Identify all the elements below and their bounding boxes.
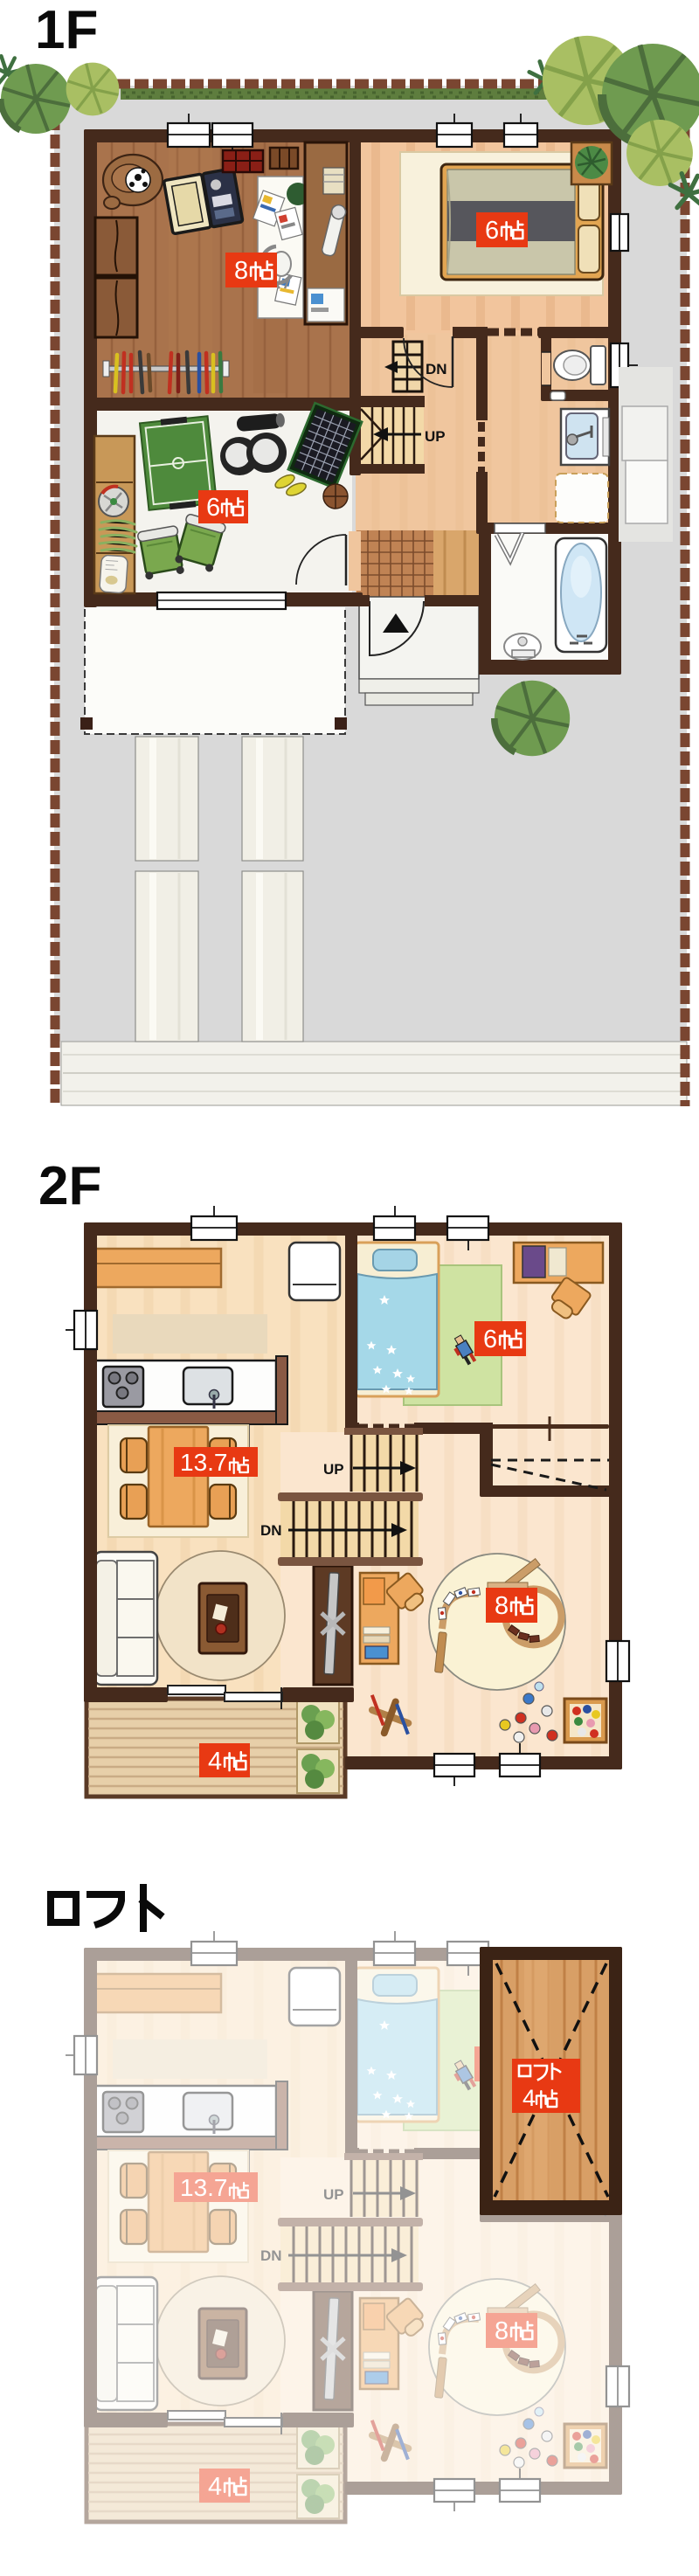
svg-text:8: 8 — [495, 1592, 509, 1620]
svg-text:4: 4 — [523, 2085, 536, 2111]
svg-text:1F: 1F — [35, 0, 98, 60]
svg-text:4: 4 — [208, 1748, 222, 1776]
svg-text:UP: UP — [323, 1461, 344, 1478]
svg-text:13.7: 13.7 — [180, 1449, 228, 1476]
svg-text:UP: UP — [425, 428, 446, 445]
svg-text:DN: DN — [426, 361, 447, 377]
svg-text:6: 6 — [485, 217, 499, 245]
svg-text:2F: 2F — [38, 1156, 101, 1216]
svg-text:8: 8 — [234, 257, 248, 285]
svg-text:6: 6 — [206, 494, 220, 522]
svg-text:6: 6 — [483, 1326, 497, 1354]
svg-text:DN: DN — [260, 1522, 282, 1539]
